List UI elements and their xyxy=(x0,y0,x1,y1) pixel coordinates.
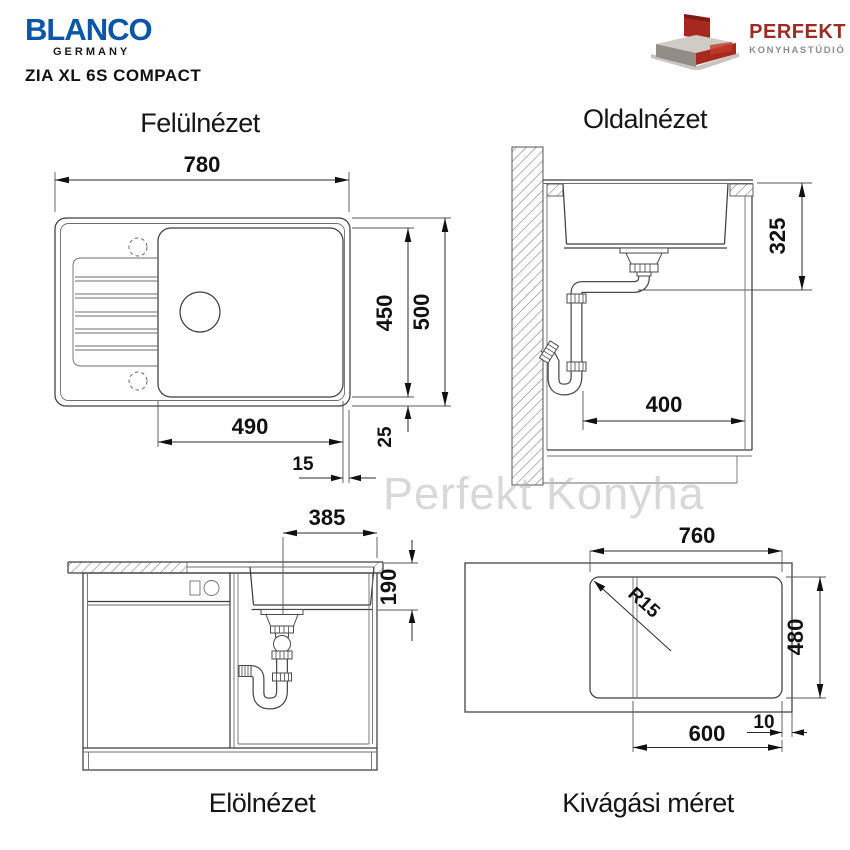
dim-cabinet-clearance: 400 xyxy=(583,391,745,430)
counter-block-left xyxy=(547,184,563,196)
trap-collar-stub xyxy=(239,666,251,677)
dim-rear-margin: 25 xyxy=(375,406,411,448)
drain-hole xyxy=(180,292,220,332)
dim-label-385: 385 xyxy=(309,505,346,530)
dim-label-780: 780 xyxy=(184,152,221,177)
technical-drawing: Felülnézet 780 xyxy=(0,0,850,850)
pipe-collar-upper xyxy=(567,294,586,303)
dim-label-400: 400 xyxy=(646,392,683,417)
trap-collar-main xyxy=(273,673,292,681)
dim-label-325: 325 xyxy=(765,218,790,255)
drain-strainer xyxy=(620,248,668,276)
front-view-title: Elölnézet xyxy=(209,788,317,818)
dim-label-600: 600 xyxy=(689,721,726,746)
dim-overall-width: 780 xyxy=(55,152,349,212)
dim-overall-depth: 500 xyxy=(352,218,451,406)
pipe-collar-lower xyxy=(567,362,586,371)
dim-label-25: 25 xyxy=(375,426,396,448)
dim-label-190: 190 xyxy=(376,569,401,606)
cutout-view-title: Kivágási méret xyxy=(562,788,735,818)
datasheet-page: BLANCO GERMANY ZIA XL 6S COMPACT PERFEKT… xyxy=(0,0,850,850)
side-view-title: Oldalnézet xyxy=(583,104,708,134)
dim-bowl-depth: 190 xyxy=(376,540,418,641)
drain-elbow xyxy=(274,636,291,653)
dim-bowl-width: 490 xyxy=(158,401,343,483)
cabinet-front-section xyxy=(83,573,377,770)
dim-label-480: 480 xyxy=(783,619,808,656)
side-view: Oldalnézet xyxy=(512,104,812,485)
countertop-hatch-left xyxy=(68,562,187,573)
cutout-rect xyxy=(590,577,782,698)
dim-label-15: 15 xyxy=(292,454,314,475)
dim-label-450: 450 xyxy=(372,295,397,332)
dim-drain-offset: 385 xyxy=(283,505,377,614)
dishwasher-control-knob xyxy=(204,581,219,596)
top-view-title: Felülnézet xyxy=(140,108,261,138)
dim-label-10: 10 xyxy=(753,712,774,733)
elbow-collar xyxy=(272,651,292,659)
top-view: Felülnézet 780 xyxy=(55,108,451,483)
drain-pipe-fill xyxy=(546,274,644,390)
cutout-view: Kivágási méret R15 760 xyxy=(465,523,826,818)
front-drain-strainer xyxy=(261,610,303,638)
dim-label-500: 500 xyxy=(409,294,434,331)
front-view: Elölnézet xyxy=(68,505,418,818)
dim-label-760: 760 xyxy=(679,523,716,548)
bowl-section xyxy=(563,184,728,248)
dim-inner-depth: 450 xyxy=(352,228,414,397)
dim-label-490: 490 xyxy=(232,414,269,439)
wall-hatch xyxy=(512,147,543,485)
counter-block-right xyxy=(730,184,753,196)
dishwasher-control-square xyxy=(190,581,200,595)
dim-edge-offset: 15 xyxy=(292,410,376,483)
